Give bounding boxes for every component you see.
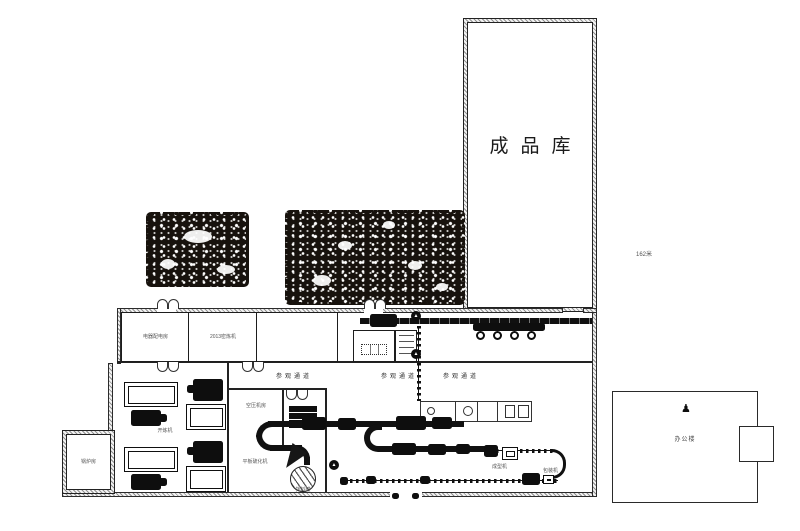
office-label: 办公楼 [613, 434, 757, 443]
packing-label: 包装机 [543, 467, 558, 474]
door-post [392, 493, 399, 499]
pile-gap [313, 275, 331, 286]
material-pile-right [285, 210, 465, 305]
annex-label: 锅炉房 [63, 458, 114, 465]
direction-arrow-icon: ▲ [411, 311, 421, 321]
mill-motor [131, 410, 161, 426]
workshop-right-wall [592, 312, 597, 497]
pile-gap [161, 259, 175, 269]
trolley-wheel [493, 331, 502, 340]
trolley-wheel [527, 331, 536, 340]
pile-gap [217, 265, 235, 274]
mill-room-label: 开炼机 [130, 427, 200, 434]
room-mixer-label: 2013密炼机 [189, 333, 257, 340]
pile-gap [338, 241, 352, 250]
forming-label: 成型机 [492, 463, 507, 470]
frame-box [518, 405, 529, 418]
walkway-label: 参观通道 [381, 371, 417, 380]
mill-room-wall [227, 363, 229, 492]
room-power: 电器配电房 [121, 312, 190, 362]
frame-divider [497, 402, 498, 421]
trolley-wheel [476, 331, 485, 340]
office-annex [739, 426, 774, 462]
chain-dog [340, 477, 348, 485]
double-door-symbol [242, 362, 264, 372]
person-icon: ♟ [681, 402, 691, 415]
mill-motor-nub [159, 478, 167, 486]
pile-gap [383, 221, 395, 229]
chain-dog [366, 476, 376, 484]
annex-room: 锅炉房 [62, 430, 115, 494]
mill-motor [131, 474, 161, 490]
dimension-label: 162米 [636, 249, 652, 258]
middle-section-wall [325, 388, 327, 492]
tank-label: 拌料罐 [276, 486, 330, 493]
line-machine [428, 444, 446, 455]
material-pile-left [146, 212, 249, 287]
packing-machine [522, 473, 540, 485]
forming-machine [484, 445, 498, 457]
room-dosing [353, 330, 417, 362]
chain-turn [552, 449, 566, 479]
forming-machine [502, 447, 518, 460]
chain-conveyor-vertical [417, 363, 421, 401]
dosing-table [361, 344, 387, 355]
door-post [412, 493, 419, 499]
compressor-room-label: 空压机房 [230, 402, 282, 409]
conveyor-segment [304, 457, 310, 465]
line-machine [456, 444, 470, 454]
table-divider [370, 345, 371, 354]
double-door-symbol [286, 390, 308, 400]
line-machine [432, 417, 452, 429]
direction-arrow-icon: ▲ [329, 460, 339, 470]
trolley-body [473, 323, 545, 331]
frame-roller [427, 407, 435, 415]
mill-motor-nub [187, 385, 195, 393]
middle-section-top-wall [229, 388, 325, 390]
conveyor-machine [370, 314, 397, 327]
room-power-label: 电器配电房 [122, 333, 189, 340]
mill-machine [124, 447, 178, 472]
pile-gap [184, 230, 212, 243]
factory-floor-plan: 成品库 162米 电器配电房 2013密炼机 [0, 0, 800, 531]
warehouse-interior [467, 22, 593, 308]
mill-machine [186, 466, 226, 492]
room-partition [394, 331, 396, 361]
mill-motor [193, 441, 223, 463]
mill-motor-nub [159, 414, 167, 422]
double-door-symbol [364, 299, 386, 309]
chain-conveyor [490, 449, 554, 453]
walkway-label: 参观通道 [276, 371, 312, 380]
line-machine [302, 417, 326, 430]
direction-arrow-icon: ▲ [411, 349, 421, 359]
line-machine [338, 418, 356, 430]
frame-roller [463, 406, 473, 416]
office-building: ♟ 办公楼 [612, 391, 758, 503]
pile-gap [436, 283, 448, 291]
chain-dog [420, 476, 430, 484]
pile-gap [408, 261, 422, 270]
trolley-wheel [510, 331, 519, 340]
line-machine [392, 443, 416, 455]
walkway-label: 参观通道 [443, 371, 479, 380]
frame-divider [477, 402, 478, 421]
middle-partition [282, 388, 284, 450]
mill-machine [124, 382, 178, 407]
mill-motor-nub [187, 447, 195, 455]
double-door-symbol [157, 299, 179, 309]
mill-motor [193, 379, 223, 401]
room-unlabeled [256, 312, 338, 362]
warehouse-building: 成品库 [463, 18, 597, 312]
double-door-symbol [157, 362, 179, 372]
vulcanizer-label: 平板硫化机 [228, 458, 282, 465]
frame-divider [455, 402, 456, 421]
table-divider [378, 345, 379, 354]
line-machine [396, 416, 426, 430]
room-mixer: 2013密炼机 [188, 312, 258, 362]
warehouse-label: 成品库 [464, 131, 596, 158]
packing-machine [543, 475, 554, 484]
frame-box [505, 405, 515, 418]
